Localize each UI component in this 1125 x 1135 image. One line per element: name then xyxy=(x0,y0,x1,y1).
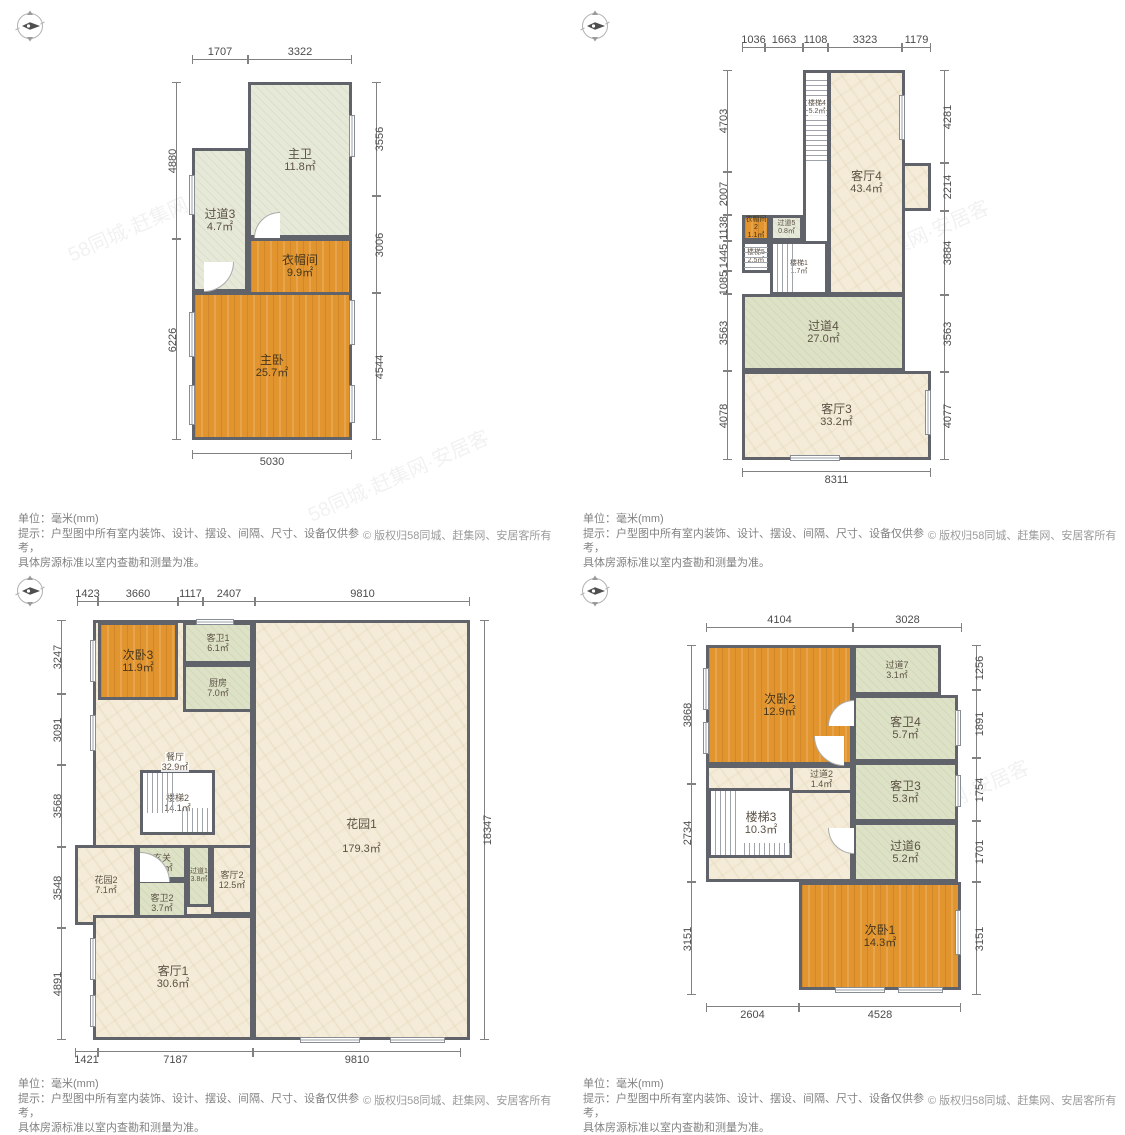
room-guest-bath-1: 客卫1 6.1㎡ xyxy=(183,622,253,664)
dim-top: 1663 xyxy=(765,36,803,52)
dim-top: 1179 xyxy=(902,36,931,52)
tip-line-2: 具体房源标准以室内查勘和测量为准。 xyxy=(18,1121,363,1135)
dim-right: 4281 xyxy=(940,70,956,163)
compass-icon xyxy=(575,571,615,611)
room-area: 14.3㎡ xyxy=(864,937,896,950)
dim-left: 3151 xyxy=(680,882,696,995)
room-area: 5.7㎡ xyxy=(892,729,918,742)
footer-note: 单位：毫米(mm) 提示：户型图中所有室内装饰、设计、摆设、间隔、尺寸、设备仅供… xyxy=(583,512,928,570)
room-area: 5.2㎡ xyxy=(808,108,827,116)
dim-right: 4544 xyxy=(372,293,388,440)
room-bedroom-1: 次卧1 14.3㎡ xyxy=(799,882,961,990)
dim-right: 18347 xyxy=(480,620,496,1040)
window xyxy=(955,910,961,955)
window xyxy=(90,938,96,980)
dim-right: 2214 xyxy=(940,163,956,211)
dim-left: 4078 xyxy=(716,371,732,460)
dim-right: 3563 xyxy=(940,295,956,372)
room-name: 客卫4 xyxy=(890,715,921,729)
room-label: 餐厅 32.9㎡ xyxy=(150,752,200,772)
room-name: 过道1 xyxy=(190,868,208,876)
room-hallway-7: 过道7 3.1㎡ xyxy=(853,645,941,695)
dim-bottom: 2604 xyxy=(706,1003,799,1019)
footer-note: 单位：毫米(mm) 提示：户型图中所有室内装饰、设计、摆设、间隔、尺寸、设备仅供… xyxy=(18,1077,363,1135)
dim-left: 4891 xyxy=(50,928,66,1040)
tip-line-1: 提示：户型图中所有室内装饰、设计、摆设、间隔、尺寸、设备仅供参考， xyxy=(583,527,928,556)
room-area: 5.2㎡ xyxy=(892,853,918,866)
room-living-4: 客厅4 43.4㎡ xyxy=(828,70,905,295)
stair-treads xyxy=(740,843,790,855)
dim-right: 3556 xyxy=(372,82,388,196)
tip-line-2: 具体房源标准以室内查勘和测量为准。 xyxy=(583,1121,928,1135)
dim-left: 3563 xyxy=(716,294,732,371)
dim-top: 3323 xyxy=(828,36,902,52)
room-name: 餐厅 xyxy=(165,752,185,762)
dim-top: 1707 xyxy=(192,48,248,64)
dim-top: 1423 xyxy=(77,590,98,606)
room-hallway-2: 过道2 1.4㎡ xyxy=(790,765,853,793)
room-name: 过道6 xyxy=(890,839,921,853)
copyright-note: © 版权归58同城、赶集网、安居客所有 xyxy=(363,527,551,543)
window xyxy=(189,385,195,425)
dim-right: 1701 xyxy=(972,821,988,882)
room-area: 12.5㎡ xyxy=(219,880,246,890)
room-area: 6.1㎡ xyxy=(207,643,229,653)
room-name: 楼梯4 xyxy=(807,100,827,108)
room-name: 过道4 xyxy=(808,319,839,333)
room-name: 过道2 xyxy=(810,769,833,779)
room-hallway-4: 过道4 27.0㎡ xyxy=(742,294,905,371)
copyright-note: © 版权归58同城、赶集网、安居客所有 xyxy=(928,527,1116,543)
stair-treads xyxy=(806,76,827,164)
dim-top: 4104 xyxy=(706,616,853,632)
dim-top: 2407 xyxy=(203,590,255,606)
tip-line-1: 提示：户型图中所有室内装饰、设计、摆设、间隔、尺寸、设备仅供参考， xyxy=(18,1092,363,1121)
stair-treads xyxy=(773,244,797,292)
room-cloakroom-2: 衣帽间2 1.1㎡ xyxy=(742,215,770,241)
room-guest-bath-4: 客卫4 5.7㎡ xyxy=(853,695,958,762)
room-hallway-1: 过道1 3.8㎡ xyxy=(187,845,211,907)
window xyxy=(955,710,961,746)
room-area: 10.3㎡ xyxy=(744,824,778,837)
unit-note: 单位：毫米(mm) xyxy=(18,512,363,527)
room-name: 次卧3 xyxy=(123,648,154,662)
room-name: 衣帽间 xyxy=(282,253,318,267)
room-area: 30.6㎡ xyxy=(157,978,189,991)
room-garden-1: 花园1 179.3㎡ xyxy=(253,620,470,1040)
room-area: 27.0㎡ xyxy=(807,333,839,346)
dim-top: 1036 xyxy=(742,36,765,52)
room-name: 客卫1 xyxy=(206,633,229,643)
dim-top: 3660 xyxy=(98,590,178,606)
room-garden-2: 花园2 7.1㎡ xyxy=(75,845,137,925)
window xyxy=(196,619,234,625)
room-area: 5.3㎡ xyxy=(892,793,918,806)
dim-top: 1108 xyxy=(803,36,828,52)
tip-line-1: 提示：户型图中所有室内装饰、设计、摆设、间隔、尺寸、设备仅供参考， xyxy=(18,527,363,556)
dim-bottom: 5030 xyxy=(192,450,352,466)
window xyxy=(90,995,96,1027)
stair-treads xyxy=(178,808,212,832)
dim-left: 3868 xyxy=(680,645,696,784)
room-area: 3.1㎡ xyxy=(886,670,908,680)
dim-left: 3548 xyxy=(50,847,66,928)
room-name: 客厅3 xyxy=(821,402,852,416)
dim-bottom: 7187 xyxy=(98,1048,253,1064)
window xyxy=(90,715,96,751)
window xyxy=(898,987,943,993)
unit-note: 单位：毫米(mm) xyxy=(583,512,928,527)
room-name: 过道5 xyxy=(778,220,796,228)
window xyxy=(925,390,931,435)
dim-bottom: 1421 xyxy=(75,1048,98,1064)
room-name: 花园2 xyxy=(94,875,117,885)
room-area: 7.1㎡ xyxy=(95,885,117,895)
dim-right: 1754 xyxy=(972,758,988,821)
tip-line-2: 具体房源标准以室内查勘和测量为准。 xyxy=(583,556,928,571)
dim-bottom: 9810 xyxy=(253,1048,461,1064)
room-kitchen: 厨房 7.0㎡ xyxy=(183,664,253,712)
dim-top: 3322 xyxy=(248,48,352,64)
room-master-bedroom: 主卧 25.7㎡ xyxy=(192,292,352,440)
room-living-2: 客厅2 12.5㎡ xyxy=(211,845,253,915)
dim-left: 2734 xyxy=(680,784,696,882)
window xyxy=(349,300,355,345)
room-area: 33.2㎡ xyxy=(820,416,852,429)
copyright-note: © 版权归58同城、赶集网、安居客所有 xyxy=(363,1092,551,1108)
footer-note: 单位：毫米(mm) 提示：户型图中所有室内装饰、设计、摆设、间隔、尺寸、设备仅供… xyxy=(583,1077,928,1135)
room-guest-bath-3: 客卫3 5.3㎡ xyxy=(853,762,958,822)
window xyxy=(703,668,709,710)
room-area: 25.7㎡ xyxy=(256,367,288,380)
dim-right: 1256 xyxy=(972,645,988,690)
floorplan-sheet: { "footer": { "unit": "单位：毫米(mm)", "tip1… xyxy=(0,0,1125,1125)
dim-right: 4077 xyxy=(940,372,956,460)
room-name: 厨房 xyxy=(209,678,227,688)
tip-line-2: 具体房源标准以室内查勘和测量为准。 xyxy=(18,556,363,571)
room-area: 9.9㎡ xyxy=(287,267,313,280)
dim-right: 1891 xyxy=(972,690,988,758)
copyright-note: © 版权归58同城、赶集网、安居客所有 xyxy=(928,1092,1116,1108)
room-name: 主卫 xyxy=(288,147,312,161)
room-name: 次卧2 xyxy=(764,692,795,706)
room-name: 过道7 xyxy=(885,660,908,670)
window xyxy=(835,987,885,993)
window xyxy=(90,640,96,682)
room-area: 11.9㎡ xyxy=(122,662,154,675)
room-area: 1.1㎡ xyxy=(748,232,765,240)
window xyxy=(349,115,355,157)
room-name: 花园1 xyxy=(346,817,377,831)
room-area: 43.4㎡ xyxy=(850,183,882,196)
room-area: 1.4㎡ xyxy=(811,779,833,789)
room-area: 11.8㎡ xyxy=(284,161,316,174)
dim-left: 4703 xyxy=(716,70,732,172)
room-area: 12.9㎡ xyxy=(763,706,795,719)
room-area: 4.7㎡ xyxy=(207,221,233,234)
room-master-bath: 主卫 11.8㎡ xyxy=(248,82,352,238)
room-name: 客厅1 xyxy=(158,964,189,978)
dim-right: 3151 xyxy=(972,882,988,995)
dim-left: 3091 xyxy=(50,694,66,765)
window xyxy=(300,1037,360,1043)
room-living-1: 客厅1 30.6㎡ xyxy=(93,915,253,1040)
window xyxy=(703,722,709,754)
window xyxy=(349,385,355,423)
room-name: 衣帽间2 xyxy=(745,216,767,232)
room-area: 7.0㎡ xyxy=(207,688,229,698)
room-bedroom-3: 次卧3 11.9㎡ xyxy=(98,622,178,700)
room-name: 主卧 xyxy=(260,353,284,367)
dim-top: 9810 xyxy=(255,590,470,606)
dim-left: 6226 xyxy=(165,239,181,440)
room-hallway-5: 过道5 0.8㎡ xyxy=(770,215,803,241)
window xyxy=(189,312,195,357)
room-label: 楼梯4 5.2㎡ xyxy=(798,100,836,116)
dim-right: 3884 xyxy=(940,211,956,295)
room-living-3: 客厅3 33.2㎡ xyxy=(742,371,931,460)
window xyxy=(955,775,961,807)
room-area: 0.8㎡ xyxy=(778,228,795,236)
window xyxy=(189,175,195,215)
unit-note: 单位：毫米(mm) xyxy=(18,1077,363,1092)
dim-top: 3028 xyxy=(853,616,962,632)
stair-treads xyxy=(711,791,737,855)
room-cloakroom: 衣帽间 9.9㎡ xyxy=(248,238,352,295)
window xyxy=(899,95,905,140)
room-name: 客卫3 xyxy=(890,779,921,793)
room-area: 3.8㎡ xyxy=(191,876,208,884)
tip-line-1: 提示：户型图中所有室内装饰、设计、摆设、间隔、尺寸、设备仅供参考， xyxy=(583,1092,928,1121)
dim-bottom: 4528 xyxy=(799,1003,961,1019)
compass-icon xyxy=(10,6,50,46)
unit-note: 单位：毫米(mm) xyxy=(583,1077,928,1092)
dim-top: 1117 xyxy=(178,590,203,606)
dim-left: 3568 xyxy=(50,765,66,847)
room-living-4-bay xyxy=(902,163,931,211)
dim-left: 4880 xyxy=(165,82,181,239)
compass-icon xyxy=(10,571,50,611)
room-hallway-6: 过道6 5.2㎡ xyxy=(853,822,958,882)
room-name: 楼梯3 xyxy=(745,810,778,824)
room-name: 次卧1 xyxy=(865,923,896,937)
room-name: 客厅4 xyxy=(851,169,882,183)
room-name: 客厅2 xyxy=(220,870,243,880)
room-area: 32.9㎡ xyxy=(161,762,190,772)
room-area: 179.3㎡ xyxy=(342,843,381,856)
window xyxy=(390,1037,445,1043)
compass-icon xyxy=(575,6,615,46)
window xyxy=(790,455,840,461)
dim-left: 1445 xyxy=(716,241,732,271)
dim-bottom: 8311 xyxy=(742,468,931,484)
room-area: 3.7㎡ xyxy=(151,903,173,913)
room-name: 客卫2 xyxy=(150,893,173,903)
footer-note: 单位：毫米(mm) 提示：户型图中所有室内装饰、设计、摆设、间隔、尺寸、设备仅供… xyxy=(18,512,363,570)
dim-left: 1138 xyxy=(716,215,732,241)
dim-left: 3247 xyxy=(50,620,66,694)
stair-treads xyxy=(744,243,768,271)
dim-left: 2007 xyxy=(716,172,732,215)
stair-treads xyxy=(143,773,173,813)
dim-right: 3006 xyxy=(372,196,388,293)
dim-left: 1085 xyxy=(716,271,732,294)
room-name: 过道3 xyxy=(205,207,236,221)
